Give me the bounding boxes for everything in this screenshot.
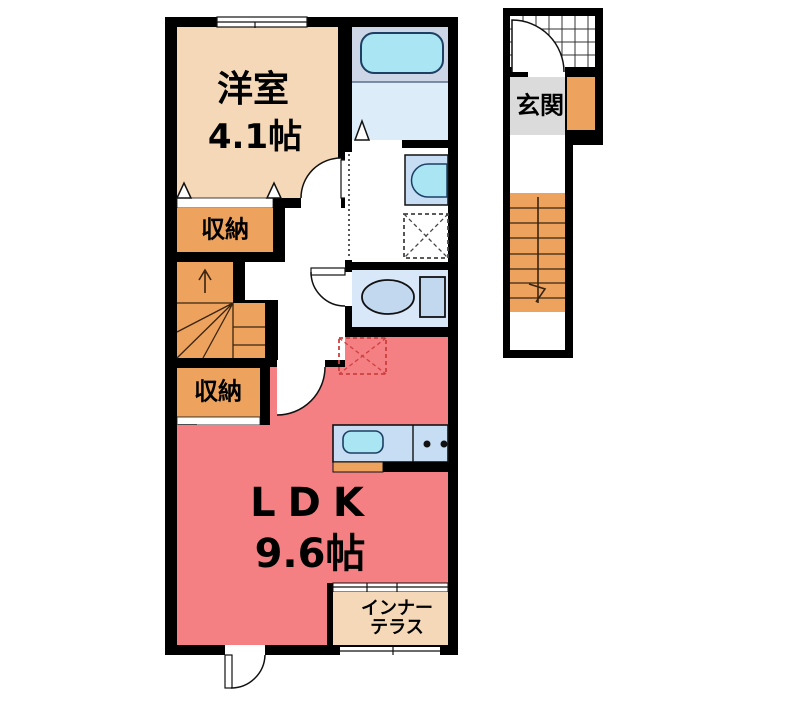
terrace-label: インナー テラス <box>361 600 433 638</box>
shoe-cabinet <box>567 77 595 130</box>
terrace-window-bottom <box>340 647 440 655</box>
ldk-name: LDK <box>250 482 376 524</box>
kitchen-sink-icon <box>343 431 383 453</box>
terrace-window-top <box>333 583 448 592</box>
closet-door-strip-lower <box>177 417 260 425</box>
closet-door-strip-upper <box>177 198 273 208</box>
floorplan: 洋室 4.1帖 収納 収納 玄関 LDK 9.6帖 インナー テラス <box>0 0 800 703</box>
terrace-label-line2: テラス <box>361 619 433 638</box>
bathtub-icon <box>361 33 443 73</box>
entrance-staircase-icon <box>510 193 565 312</box>
washroom-sliding-door <box>345 152 353 260</box>
toilet-icon <box>362 277 445 317</box>
ldk-south-door <box>225 645 265 688</box>
western-room-size: 4.1帖 <box>208 120 302 156</box>
washbasin-icon <box>405 155 448 205</box>
western-room-window <box>217 17 307 28</box>
storage-lower-label: 収納 <box>194 379 242 404</box>
entrance-corridor-floor <box>510 135 565 193</box>
ldk-size: 9.6帖 <box>255 533 366 575</box>
storage-upper-label: 収納 <box>201 217 249 242</box>
western-room-name: 洋室 <box>217 71 289 109</box>
entrance-landing <box>510 312 565 350</box>
bathroom-door-opening <box>352 140 402 148</box>
kitchen-counter-icon <box>333 425 448 472</box>
entrance-label: 玄関 <box>516 93 564 118</box>
